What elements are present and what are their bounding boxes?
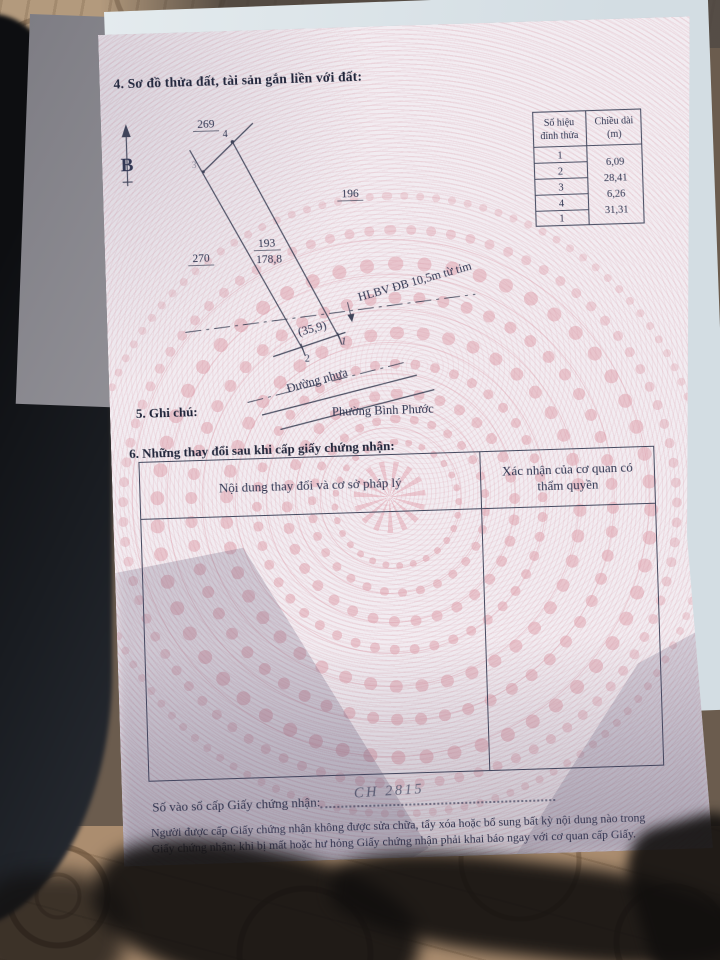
photo-of-land-certificate: 4. Sơ đồ thửa đất, tài sản gắn liền với … [0,0,720,960]
vertex-2-label: 2 [305,354,310,365]
dotted-leader: CH 2815 [320,786,555,808]
adjacent-parcel-270: 270 [192,253,210,266]
vertex-id: 3 [558,182,564,193]
registry-number-handwritten: CH 2815 [354,781,425,803]
parcel-area-label: 178,8 [256,253,282,266]
vertex-id: 4 [559,198,565,209]
parcel-diagram: B [98,16,717,465]
arrow-down-icon [347,314,354,323]
registry-label: Số vào sổ cấp Giấy chứng nhận: [152,794,320,814]
changes-table: Nội dung thay đổi và cơ sở pháp lý Xác n… [138,446,664,782]
vertex-table: Số hiệu đỉnh thửa Chiều dài (m) 1 2 3 4 … [533,109,645,226]
edge-length: 6,26 [607,189,626,201]
ward-note: Phường Bình Phước [332,402,434,420]
certificate-page: 4. Sơ đồ thửa đất, tài sản gắn liền với … [98,16,716,866]
page-content: 4. Sơ đồ thửa đất, tài sản gắn liền với … [98,16,716,866]
parcel-number-label: 193 [258,238,276,251]
svg-text:đỉnh thửa: đỉnh thửa [540,130,579,142]
edge-length: 6,09 [606,157,625,169]
vertex-id: 2 [558,166,564,177]
road-name-label: Đường nhựa [285,365,350,396]
corridor-line [184,294,476,332]
changes-table-col2: Xác nhận của cơ quan có thẩm quyền [480,447,663,770]
diagram-labels: 269 4 3 196 270 193 178,8 2 1 (35,9) HLB… [184,110,478,398]
vertex-3-label: 3 [192,160,197,170]
vertex-table-col1-header: Số hiệu [544,117,575,129]
changes-col1-header: Nội dung thay đổi và cơ sở pháp lý [139,452,481,520]
registry-line: Số vào sổ cấp Giấy chứng nhận:CH 2815 [152,786,555,816]
changes-col2-header: Xác nhận của cơ quan có thẩm quyền [480,447,655,509]
vertex-table-col2-header: Chiều dài [594,115,633,127]
north-arrow-icon: B [119,124,134,186]
vertex-1-label: 1 [341,336,346,347]
adjacent-parcel-269: 269 [197,118,215,131]
adjacent-parcel-196: 196 [341,188,359,201]
north-symbol: B [120,155,134,176]
vertex-id: 1 [557,150,563,161]
edge-length: 28,41 [604,172,628,184]
svg-text:(m): (m) [607,129,622,140]
corridor-area-label: (35,9) [296,318,328,339]
vertex-id: 1 [559,213,565,224]
vertex-4-label: 4 [223,129,228,140]
changes-table-col1: Nội dung thay đổi và cơ sở pháp lý [139,452,490,781]
edge-length: 31,31 [605,204,629,216]
section5-label: 5. Ghi chú: [136,404,198,422]
